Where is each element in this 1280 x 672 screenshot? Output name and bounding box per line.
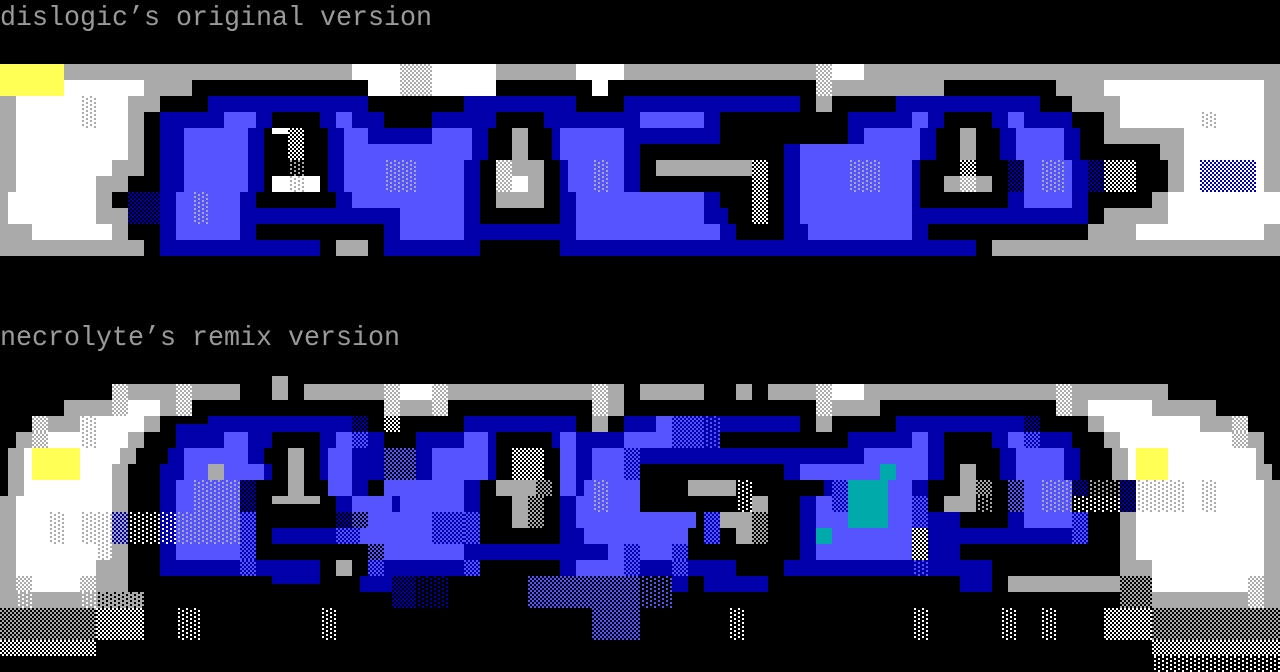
svg-text:dislogic’s original version: dislogic’s original version: [0, 3, 432, 34]
svg-text:necrolyte’s remix version: necrolyte’s remix version: [0, 323, 400, 354]
